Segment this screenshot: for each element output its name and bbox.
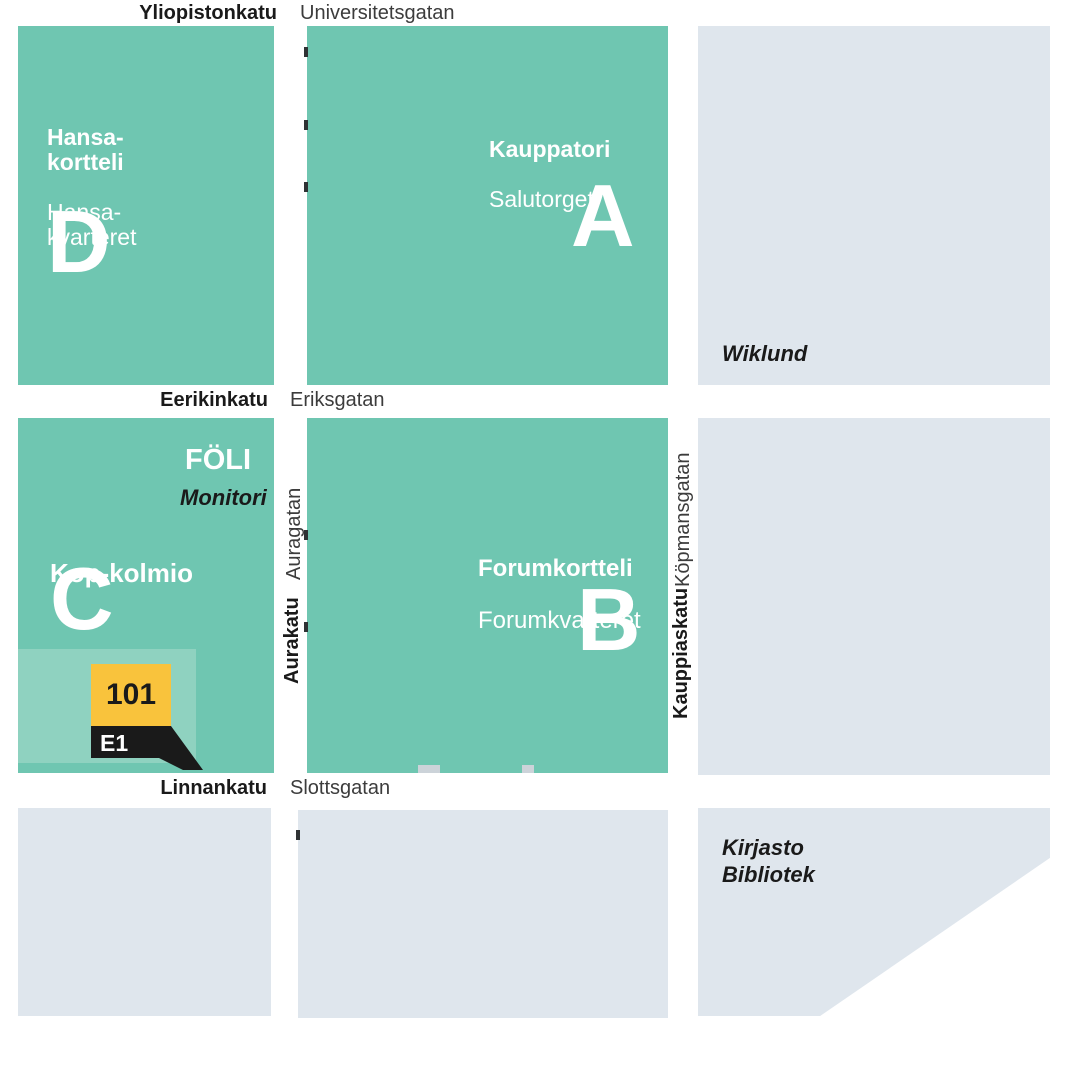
- library-label-fi: Kirjasto: [722, 834, 815, 861]
- block-name-fi: Kauppatori: [489, 137, 610, 162]
- block-library: Kirjasto Bibliotek: [698, 808, 1050, 1016]
- entrance-marker-e1: E1: [100, 730, 128, 757]
- street-label-kopmansgatan: Köpmansgatan: [672, 452, 695, 587]
- entrance-tick: [304, 622, 308, 632]
- street-label-aurakatu: Aurakatu: [281, 597, 304, 684]
- library-label: Kirjasto Bibliotek: [722, 834, 815, 888]
- street-label-auragatan: Auragatan: [283, 488, 306, 580]
- block-kop-kolmio: FÖLI Monitori Kop-kolmio C 101 E1: [18, 418, 274, 773]
- entrance-tick: [522, 765, 534, 773]
- street-label-eriksgatan: Eriksgatan: [290, 389, 385, 412]
- monitori-label: Monitori: [180, 487, 267, 509]
- entrance-tick: [304, 530, 308, 540]
- library-label-sv: Bibliotek: [722, 861, 815, 888]
- block-letter-a: A: [571, 172, 635, 260]
- block-letter-d: D: [47, 198, 111, 286]
- block-letter-b: B: [577, 576, 641, 664]
- foli-logo: FÖLI: [185, 446, 251, 475]
- street-label-kauppiaskatu: Kauppiaskatu: [670, 588, 693, 719]
- block-hansakortteli: Hansa- kortteli Hansa- kvarteret D: [18, 26, 274, 385]
- stop-marker-101: 101: [91, 664, 171, 726]
- block-wiklund: Wiklund: [698, 26, 1050, 385]
- block-gray-southwest: [18, 808, 271, 1016]
- entrance-tick: [304, 182, 308, 192]
- street-label-yliopistonkatu: Yliopistonkatu: [0, 2, 277, 25]
- block-letter-c: C: [50, 555, 114, 643]
- entrance-tick: [296, 830, 300, 840]
- block-gray-south: [298, 810, 668, 1018]
- street-label-eerikinkatu: Eerikinkatu: [0, 389, 268, 412]
- street-label-slottsgatan: Slottsgatan: [290, 777, 390, 800]
- street-label-linnankatu: Linnankatu: [0, 777, 267, 800]
- block-kauppatori: Kauppatori Salutorget A: [307, 26, 668, 385]
- city-map: Yliopistonkatu Universitetsgatan Eerikin…: [0, 0, 1080, 1080]
- wiklund-label: Wiklund: [722, 340, 807, 367]
- block-gray-east: [698, 418, 1050, 775]
- block-forumkortteli: Forumkortteli Forumkvarteret B: [307, 418, 668, 773]
- block-name-fi: Hansa- kortteli: [47, 125, 136, 175]
- entrance-tick: [304, 47, 308, 57]
- entrance-tick: [418, 765, 440, 773]
- street-label-universitetsgatan: Universitetsgatan: [300, 2, 455, 25]
- entrance-tick: [304, 120, 308, 130]
